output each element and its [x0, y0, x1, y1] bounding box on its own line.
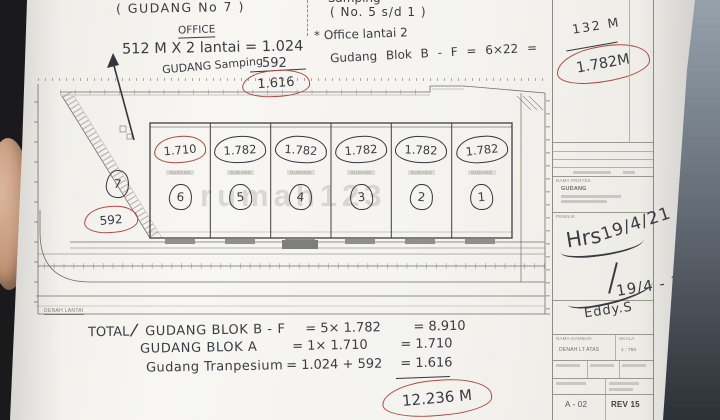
bay-number: 2	[417, 190, 426, 205]
owner-label: PEMILIK	[556, 214, 575, 220]
revision-table	[553, 142, 653, 176]
totals-row-2: GUDANG BLOK A = 1× 1.710 = 1.710	[140, 337, 453, 355]
scale-value: 1 : 750	[621, 347, 636, 353]
totals-calc: = 1× 1.710	[292, 338, 396, 353]
bay-area-value: 1.710	[163, 141, 197, 158]
margin-tick-marks	[546, 100, 550, 310]
bay-block-c: 1.782 GUDANG 3	[331, 123, 391, 238]
red-fold-mark	[307, 0, 308, 36]
totals-label: Gudang Tranpesium	[146, 359, 282, 374]
bay-number: 4	[296, 190, 305, 205]
bay-area-circled: 1.782	[455, 133, 510, 165]
totals-calc: = 1.024 + 592	[286, 357, 396, 372]
project-label: NAMA PROYEK	[556, 178, 591, 184]
totals-label: GUDANG BLOK A	[140, 340, 288, 356]
bay-area-circled: 1.782	[395, 135, 448, 164]
bay-printed-label: GUDANG	[166, 170, 194, 175]
bay-area-circled: 1.782	[214, 135, 267, 165]
grand-total-circled: 12.236 M	[381, 375, 494, 420]
note-plus-value: 592	[262, 57, 287, 70]
note-office-lantai2: * Office lantai 2	[314, 26, 408, 41]
note-range: ( No. 5 s/d 1 )	[330, 6, 427, 18]
bay-number-circled: 6	[167, 183, 193, 211]
sheet-number-row: A - 02 REV 15	[553, 394, 653, 420]
bay-area-value: 1.782	[465, 141, 499, 158]
totals-result: = 8.910	[413, 319, 466, 335]
bay-number-circled: 1	[469, 183, 494, 211]
bay-printed-label: GUDANG	[287, 170, 315, 175]
bay-block-d: 1.782 GUDANG 4	[271, 123, 331, 238]
sheet-number: A - 02	[565, 402, 587, 408]
totals-calc: = 5× 1.782	[305, 321, 409, 336]
bay-number: 1	[477, 190, 486, 205]
note-gudang-samping: GUDANG Samping	[162, 56, 264, 76]
revision-number: REV 15	[611, 402, 640, 408]
bay-area-circled: 1.782	[334, 134, 388, 165]
note-clipped: * Samping	[318, 0, 381, 4]
bay-area-value: 1.782	[344, 141, 378, 157]
bay-number-circled: 4	[288, 183, 314, 211]
bay-number: 5	[236, 190, 245, 205]
grand-total-value: 12.236 M	[401, 386, 473, 410]
bay-block-f: 1.710 GUDANG 6	[150, 123, 210, 238]
totals-result: = 1.616	[400, 355, 453, 371]
drawing-name-section: NAMA GAMBAR SKALA DENAH LT ATAS 1 : 750	[553, 334, 653, 360]
bay-number: 6	[176, 190, 185, 205]
bay-area-value: 1.782	[224, 142, 258, 158]
bay-area-value: 1.782	[405, 142, 438, 157]
totals-title: TOTAL	[88, 325, 130, 341]
totals-slash: /	[129, 322, 138, 340]
bay-number-circled: 3	[349, 183, 374, 211]
totals-label: GUDANG BLOK B - F	[145, 323, 301, 339]
title-block: NAMA PROYEK GUDANG PEMILIK NAMA GAMBAR S…	[552, 0, 654, 420]
trapezium-area-value: 592	[99, 212, 123, 228]
scale-label: SKALA	[619, 336, 635, 342]
note-formula: 512 M X 2 lantai = 1.024	[122, 39, 304, 57]
bay-block-a: 1.782 GUDANG 1	[452, 123, 512, 238]
bay-printed-label: GUDANG	[227, 170, 255, 175]
plan-caption: DENAH LANTAI	[44, 308, 84, 315]
note-gudang-no: ( GUDANG No 7 )	[116, 1, 245, 16]
bay-area-circled: 1.782	[274, 134, 328, 165]
bay-block-e: 1.782 GUDANG 5	[210, 123, 270, 238]
date-row	[553, 378, 653, 394]
bay-number-circled: 5	[228, 183, 253, 211]
bay-block-b: 1.782 GUDANG 2	[391, 123, 451, 238]
annotation-arrow	[98, 50, 142, 144]
project-section: NAMA PROYEK GUDANG	[553, 176, 653, 212]
note-blok-calc: Gudang Blok B - F = 6×22 =	[330, 42, 538, 65]
photo-of-drawing: rumah123 DENAH LANTAI ( GUDANG No 7 ) OF…	[0, 0, 720, 420]
bay-area-circled: 1.710	[153, 134, 207, 165]
bay-printed-label: GUDANG	[408, 170, 436, 175]
subtotal-value: 1.616	[257, 75, 295, 93]
trapezium-number: 7	[113, 177, 122, 192]
bay-printed-label: GUDANG	[347, 170, 375, 175]
drawing-name: DENAH LT ATAS	[559, 347, 599, 353]
project-name: GUDANG	[561, 186, 587, 192]
drawing-sheet: rumah123 DENAH LANTAI ( GUDANG No 7 ) OF…	[0, 0, 720, 420]
totals-result: = 1.710	[400, 336, 453, 352]
warehouse-bays: 1.710 GUDANG 6 1.782 GUDANG 5 1.782 GUDA…	[150, 123, 512, 238]
note-office-label: OFFICE	[178, 24, 216, 38]
bay-number-circled: 2	[409, 183, 435, 211]
bay-printed-label: GUDANG	[468, 170, 496, 175]
bay-area-value: 1.782	[284, 141, 318, 157]
title-block-divider	[629, 0, 630, 142]
totals-row-3: Gudang Tranpesium = 1.024 + 592 = 1.616	[146, 356, 453, 374]
drawing-label: NAMA GAMBAR	[556, 336, 592, 342]
approval-row	[553, 360, 653, 378]
bay-number: 3	[357, 190, 366, 205]
